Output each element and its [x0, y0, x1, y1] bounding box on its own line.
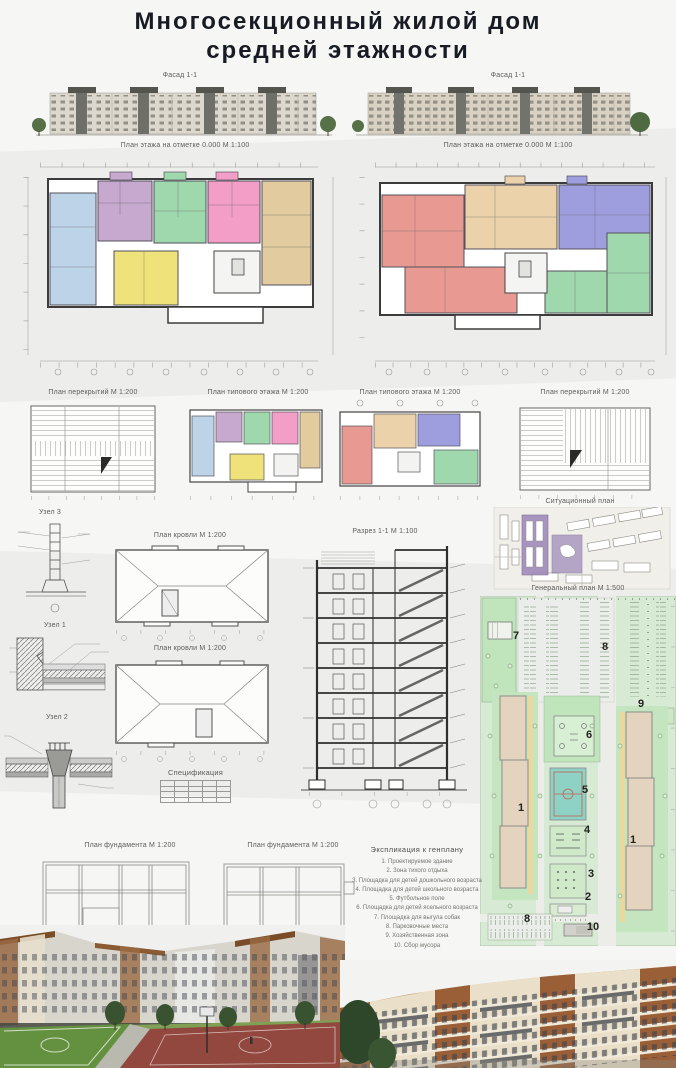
foundation-left-label: План фундамента М 1:200	[45, 842, 215, 849]
legend-list: 1. Проектируемое здание 2. Зона тихого о…	[342, 858, 492, 951]
slab-plan-left-label: План перекрытий М 1:200	[13, 389, 173, 396]
render-right	[340, 960, 676, 1068]
section-label: Разрез 1-1 М 1:100	[315, 528, 455, 535]
slab-plan-left-drawing	[13, 398, 173, 506]
legend-item: 6. Площадка для детей ясельного возраста	[342, 904, 492, 913]
roof-plan-2-label: План кровли М 1:200	[110, 645, 270, 652]
legend-item: 5. Футбольное поле	[342, 895, 492, 904]
legend-item: 9. Хозяйственная зона	[342, 932, 492, 941]
legend-item: 1. Проектируемое здание	[342, 858, 492, 867]
node-3-drawing	[8, 520, 103, 618]
zone-number-10: 10	[582, 921, 604, 933]
zone-number-1-left: 1	[513, 802, 529, 814]
specification-table	[160, 780, 231, 803]
zone-number-2: 2	[580, 891, 596, 903]
master-plan-label: Генеральный план М 1:500	[498, 585, 658, 592]
zone-number-3: 3	[583, 868, 599, 880]
node-2-label: Узел 2	[22, 714, 92, 721]
typical-floor-left-label: План типового этажа М 1:200	[178, 389, 338, 396]
slab-plan-right-label: План перекрытий М 1:200	[505, 389, 665, 396]
zone-number-8b: 8	[519, 913, 535, 925]
legend-title: Экспликация к генплану	[342, 845, 492, 854]
zone-number-1-right: 1	[625, 834, 641, 846]
roof-plan-1-drawing	[100, 542, 285, 642]
zone-number-5: 5	[577, 784, 593, 796]
page-title: Многосекционный жилой дом средней этажно…	[0, 8, 676, 66]
slab-plan-right-drawing	[508, 398, 663, 503]
zone-number-9: 9	[633, 698, 649, 710]
node-1-label: Узел 1	[20, 622, 90, 629]
situational-plan-drawing	[492, 507, 672, 591]
typical-floor-left-drawing	[178, 398, 338, 506]
node-1-drawing	[5, 632, 115, 714]
node-3-label: Узел 3	[15, 509, 85, 516]
facade-left-drawing	[32, 85, 336, 143]
specification-label: Спецификация	[148, 768, 243, 777]
facade-right-drawing	[352, 85, 652, 143]
render-left	[0, 925, 345, 1068]
situational-plan-label: Ситуационный план	[495, 498, 665, 505]
zone-number-4: 4	[579, 824, 595, 836]
legend-item: 7. Площадка для выгула собак	[342, 914, 492, 923]
title-line-2: средней этажности	[0, 37, 676, 66]
legend-item: 10. Сбор мусора	[342, 942, 492, 951]
section-drawing	[295, 538, 475, 812]
zone-number-6: 6	[581, 729, 597, 741]
masterplan-legend: Экспликация к генплану 1. Проектируемое …	[342, 845, 492, 951]
roof-plan-2-drawing	[100, 655, 285, 763]
poster-board: Многосекционный жилой дом средней этажно…	[0, 0, 676, 1068]
zone-number-8: 8	[597, 641, 613, 653]
zone-number-7: 7	[508, 630, 524, 642]
floor-plan-left-label: План этажа на отметке 0.000 М 1:100	[55, 142, 315, 149]
title-line-1: Многосекционный жилой дом	[0, 8, 676, 37]
facade-left-label: Фасад 1-1	[140, 72, 220, 79]
facade-right-label: Фасад 1-1	[468, 72, 548, 79]
master-plan-drawing	[480, 596, 676, 946]
floor-plan-right-label: План этажа на отметке 0.000 М 1:100	[378, 142, 638, 149]
legend-item: 8. Парковочные места	[342, 923, 492, 932]
floor-plan-left-drawing	[18, 155, 343, 377]
floor-plan-right-drawing	[355, 155, 673, 377]
legend-item: 4. Площадка для детей школьного возраста	[342, 886, 492, 895]
roof-plan-1-label: План кровли М 1:200	[110, 532, 270, 539]
legend-item: 2. Зона тихого отдыха	[342, 867, 492, 876]
typical-floor-right-label: План типового этажа М 1:200	[330, 389, 490, 396]
legend-item: 3. Площадка для детей дошкольного возрас…	[342, 877, 492, 886]
typical-floor-right-drawing	[330, 398, 495, 506]
